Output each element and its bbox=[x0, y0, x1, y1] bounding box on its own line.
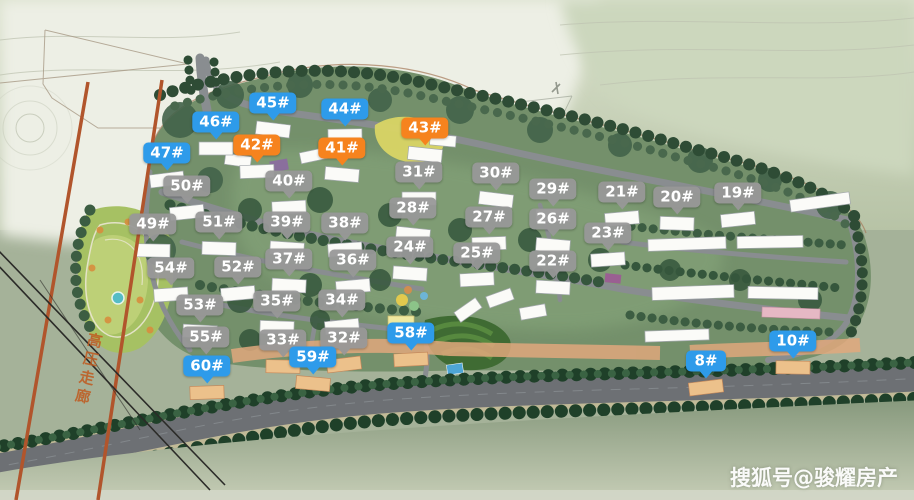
building-marker-34: 34# bbox=[318, 290, 365, 311]
building-marker-42: 42# bbox=[233, 135, 280, 156]
building-marker-44: 44# bbox=[321, 99, 368, 120]
building-marker-55: 55# bbox=[182, 327, 229, 348]
building-marker-46: 46# bbox=[192, 112, 239, 133]
building-marker-43: 43# bbox=[401, 118, 448, 139]
building-marker-45: 45# bbox=[249, 93, 296, 114]
building-marker-41: 41# bbox=[318, 138, 365, 159]
building-marker-30: 30# bbox=[472, 163, 519, 184]
building-marker-35: 35# bbox=[253, 291, 300, 312]
building-marker-39: 39# bbox=[263, 212, 310, 233]
building-marker-21: 21# bbox=[598, 182, 645, 203]
building-marker-20: 20# bbox=[653, 187, 700, 208]
watermark: 搜狐号@骏耀房产 bbox=[730, 462, 898, 492]
building-marker-24: 24# bbox=[386, 237, 433, 258]
building-marker-37: 37# bbox=[265, 249, 312, 270]
building-marker-38: 38# bbox=[321, 213, 368, 234]
building-marker-60: 60# bbox=[183, 356, 230, 377]
building-marker-8: 8# bbox=[686, 351, 726, 372]
building-marker-36: 36# bbox=[329, 250, 376, 271]
building-marker-50: 50# bbox=[163, 176, 210, 197]
building-marker-54: 54# bbox=[147, 258, 194, 279]
building-marker-59: 59# bbox=[289, 347, 336, 368]
building-marker-10: 10# bbox=[769, 331, 816, 352]
building-marker-49: 49# bbox=[129, 214, 176, 235]
building-marker-28: 28# bbox=[389, 198, 436, 219]
building-marker-31: 31# bbox=[395, 162, 442, 183]
building-marker-32: 32# bbox=[320, 328, 367, 349]
building-marker-40: 40# bbox=[265, 171, 312, 192]
building-marker-58: 58# bbox=[387, 323, 434, 344]
building-marker-53: 53# bbox=[176, 295, 223, 316]
markers-layer: 8#10#19#20#21#22#23#24#25#26#27#28#29#30… bbox=[0, 0, 914, 500]
building-marker-22: 22# bbox=[529, 251, 576, 272]
building-marker-51: 51# bbox=[195, 212, 242, 233]
building-marker-23: 23# bbox=[584, 223, 631, 244]
building-marker-26: 26# bbox=[529, 209, 576, 230]
building-marker-29: 29# bbox=[529, 179, 576, 200]
building-marker-52: 52# bbox=[214, 257, 261, 278]
building-marker-25: 25# bbox=[453, 243, 500, 264]
building-marker-19: 19# bbox=[714, 183, 761, 204]
building-marker-27: 27# bbox=[465, 207, 512, 228]
master-plan-image: 8#10#19#20#21#22#23#24#25#26#27#28#29#30… bbox=[0, 0, 914, 500]
building-marker-47: 47# bbox=[143, 143, 190, 164]
